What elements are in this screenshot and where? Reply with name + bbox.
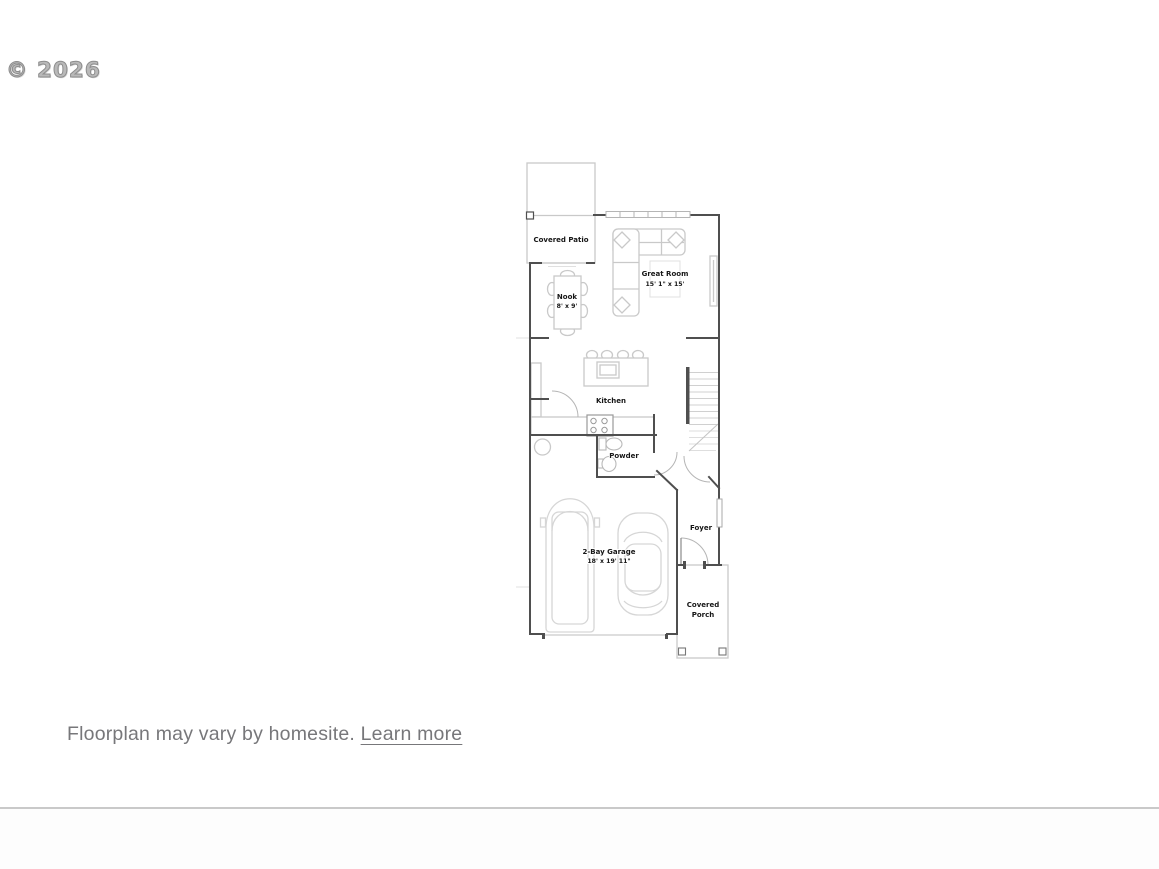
great-room-windows — [606, 212, 690, 218]
label-garage-dims: 18' x 19' 11" — [587, 558, 630, 565]
label-porch-line2: Porch — [692, 611, 715, 619]
label-garage: 2-Bay Garage — [582, 548, 635, 556]
room-covered-patio — [527, 163, 596, 267]
hall-door-arc — [684, 456, 710, 482]
label-foyer: Foyer — [690, 524, 713, 532]
copyright-watermark: © 2026 — [6, 58, 101, 83]
rug — [650, 261, 680, 297]
label-great-room: Great Room — [642, 270, 689, 278]
garage-contents — [535, 439, 669, 639]
label-nook: Nook — [557, 293, 577, 301]
vehicle-truck — [541, 499, 600, 632]
porch-post — [719, 648, 726, 655]
below-divider-area — [0, 809, 1159, 869]
label-covered-patio: Covered Patio — [533, 236, 588, 244]
toilet-tank — [599, 438, 606, 450]
label-powder: Powder — [609, 452, 639, 460]
foyer-window — [717, 499, 722, 527]
disclaimer-row: Floorplan may vary by homesite. Learn mo… — [67, 723, 462, 746]
water-heater — [535, 439, 551, 455]
counter-left — [531, 363, 541, 417]
stove — [587, 415, 613, 436]
page: © 2026 — [0, 0, 1159, 869]
toilet-bowl — [606, 438, 622, 450]
floorplan-image: Covered Patio Great Room 15' 1" x 15' No… — [513, 152, 743, 672]
learn-more-link[interactable]: Learn more — [361, 723, 463, 745]
foyer-fixtures — [681, 456, 710, 565]
front-door-arc — [681, 538, 708, 565]
stairs — [686, 367, 718, 451]
disclaimer-text: Floorplan may vary by homesite. — [67, 723, 355, 745]
kitchen-fixtures — [531, 351, 654, 437]
label-porch-line1: Covered — [687, 601, 719, 609]
pantry-door-arc — [552, 391, 578, 417]
label-great-room-dims: 15' 1" x 15' — [646, 281, 685, 288]
porch-post — [679, 648, 686, 655]
stair-rail — [686, 367, 690, 424]
label-nook-dims: 8' x 9' — [557, 303, 578, 310]
label-kitchen: Kitchen — [596, 397, 626, 405]
patio-post — [527, 212, 534, 219]
